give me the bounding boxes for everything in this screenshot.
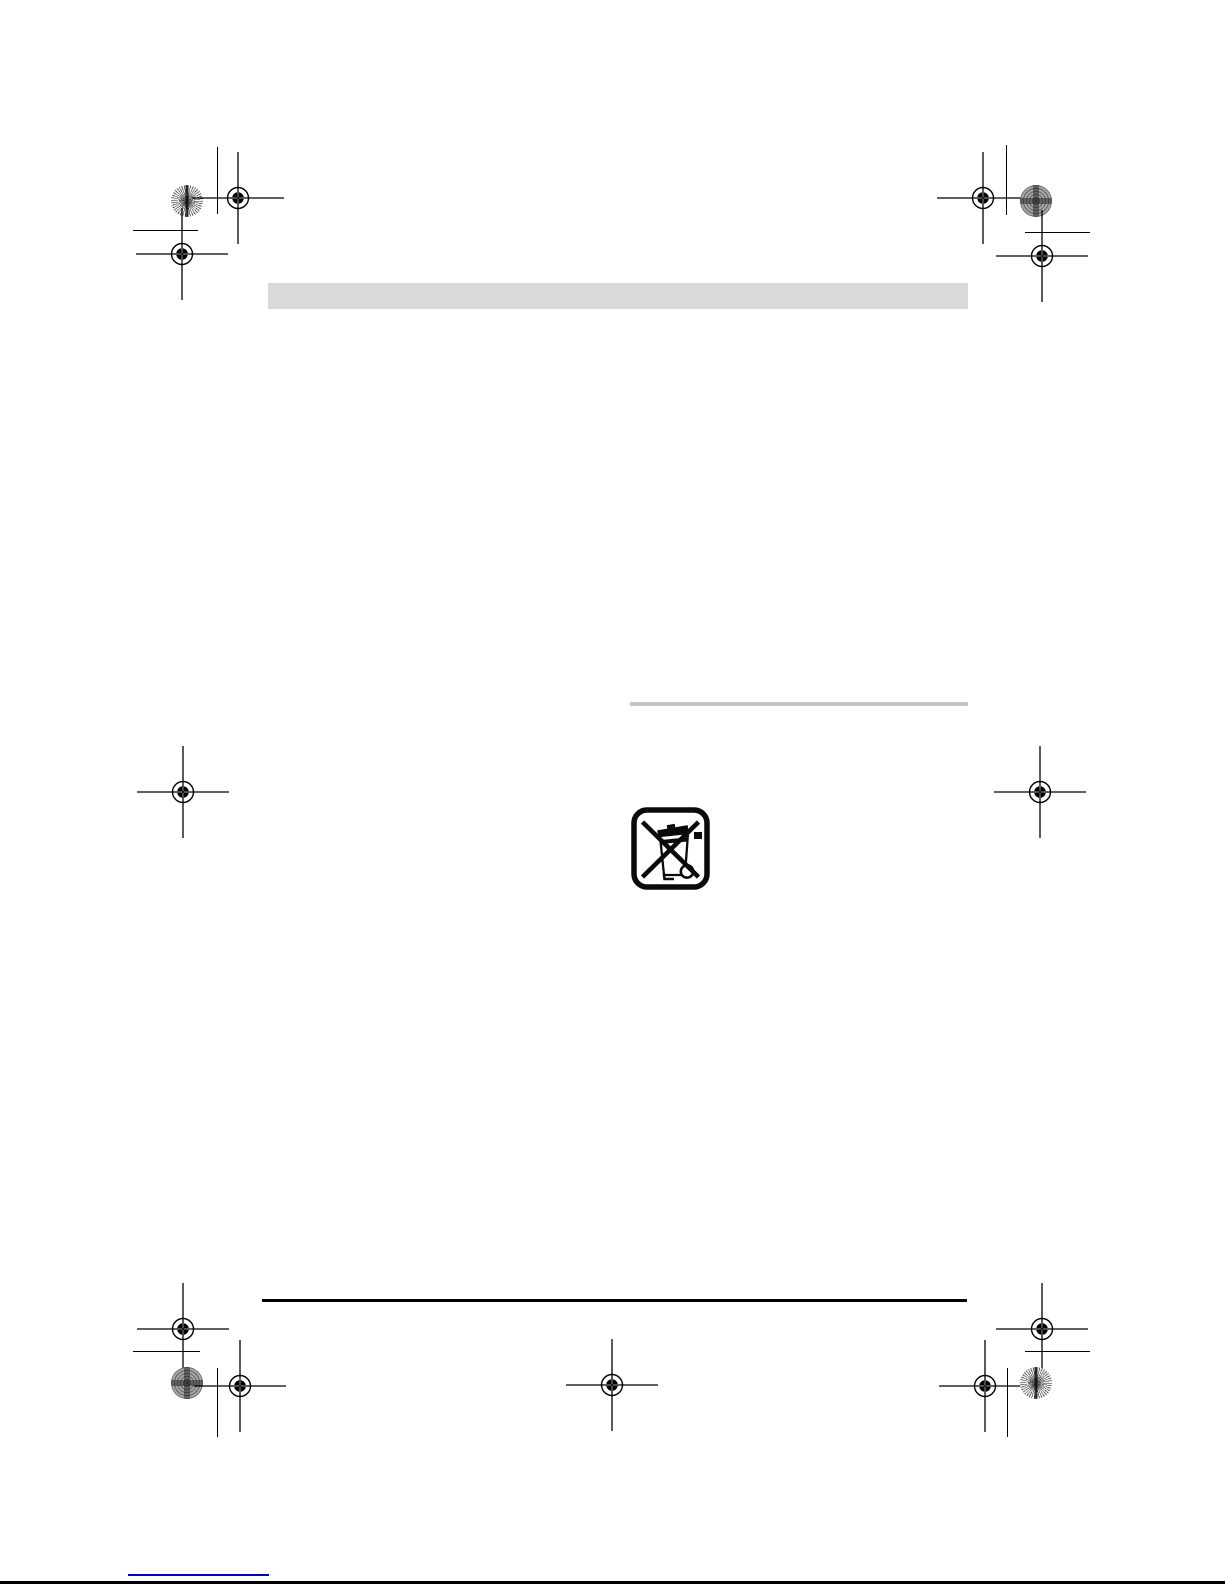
registration-mark-icon [939,1340,1031,1432]
crop-line [133,1351,200,1353]
registration-mark-icon [137,746,229,838]
registration-mark-icon [994,746,1086,838]
document-page [0,0,1225,1585]
crop-line [1025,1351,1090,1353]
page-bottom-rule [0,1581,1225,1584]
registration-mark-icon [194,1340,286,1432]
weee-crossed-out-bin-icon [631,807,710,890]
registration-mark-icon [566,1339,658,1431]
registration-mark-icon [996,210,1088,302]
section-divider [630,702,968,706]
content-footer-rule [262,1299,967,1302]
starburst-calibration-icon [1020,1367,1052,1399]
crop-line [1007,1368,1009,1437]
crop-line [1006,145,1008,215]
header-bar [268,283,968,309]
registration-mark-icon [136,208,228,300]
footer-hyperlink[interactable] [128,1574,269,1576]
